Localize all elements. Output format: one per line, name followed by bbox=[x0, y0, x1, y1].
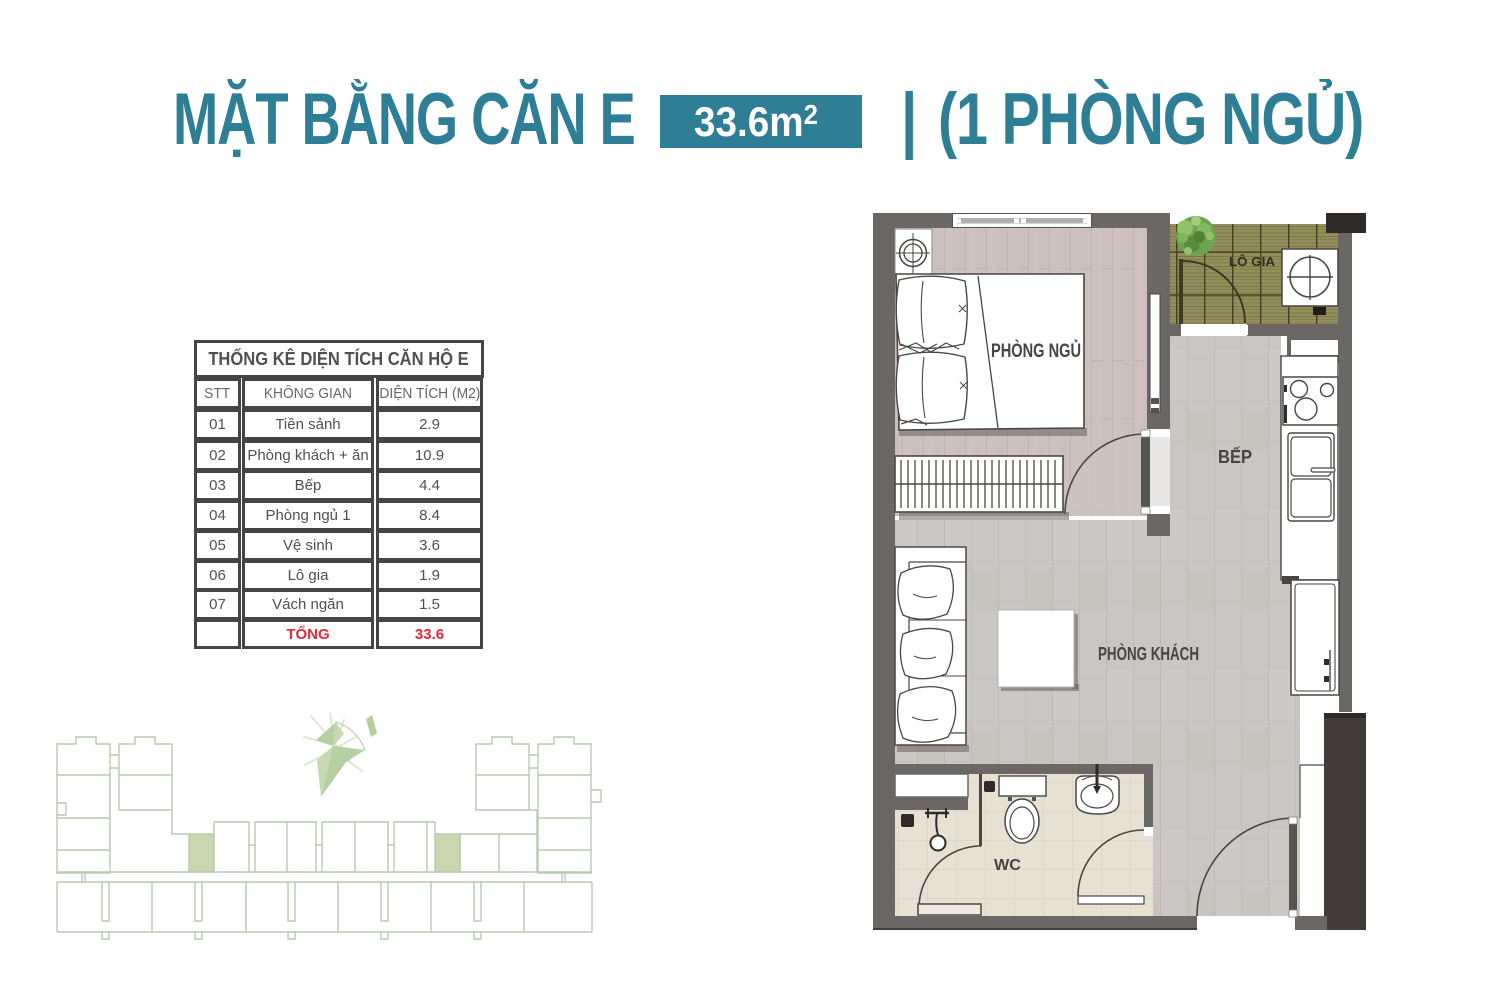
svg-text:BẾP: BẾP bbox=[1218, 446, 1252, 467]
svg-text:LÔ GIA: LÔ GIA bbox=[1229, 254, 1275, 269]
svg-text:PHÒNG NGỦ: PHÒNG NGỦ bbox=[991, 340, 1081, 362]
svg-text:WC: WC bbox=[994, 857, 1021, 874]
svg-text:PHÒNG KHÁCH: PHÒNG KHÁCH bbox=[1098, 643, 1199, 664]
